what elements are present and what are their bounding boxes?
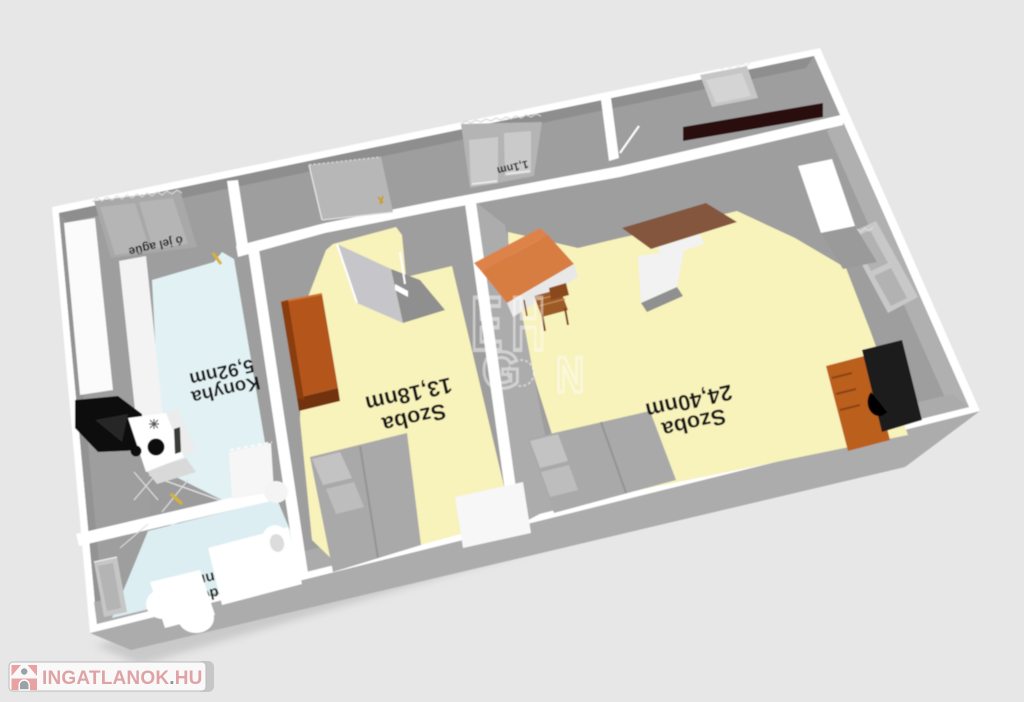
svg-text:G: G — [482, 341, 520, 399]
svg-text:INGATLANOK.HU: INGATLANOK.HU — [42, 668, 203, 689]
svg-text:N: N — [556, 346, 584, 403]
